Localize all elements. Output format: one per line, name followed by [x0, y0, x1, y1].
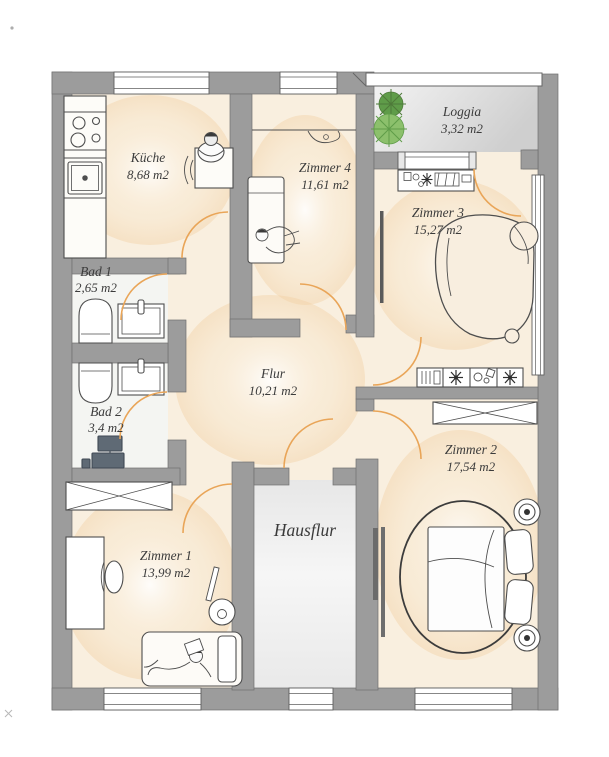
loggia-edge: [353, 73, 542, 86]
kitchen-sink-icon: [68, 162, 102, 194]
wall-zimmer4-bottom: [230, 319, 300, 337]
radiator-strip: [381, 527, 385, 637]
loggia-parapet: [366, 73, 542, 86]
decor-plant-dark: [449, 370, 463, 385]
wall-exterior-right: [538, 74, 558, 710]
wall-entry-left: [254, 468, 289, 485]
label-loggia: Loggia: [442, 104, 482, 119]
label-flur: Flur: [260, 366, 286, 381]
sink-bad1: [118, 300, 164, 338]
wall-loggia-band-left: [374, 152, 398, 169]
wardrobe-zimmer1: [66, 482, 172, 510]
label-bad1: Bad 1: [80, 264, 112, 279]
wall-zimmer3-zimmer2: [356, 387, 538, 399]
curtain-strip: [380, 211, 384, 303]
toilet-bad1: [79, 299, 112, 343]
label-loggia-area: 3,32 m2: [440, 121, 483, 136]
wall-between-baths: [72, 343, 168, 363]
sink-bad2: [118, 359, 164, 395]
window-zimmer1: [104, 688, 201, 710]
window-zimmer4: [280, 72, 337, 94]
speaker-icon-bottom: [514, 625, 540, 651]
window-hausflur: [289, 688, 333, 710]
wall-zimmer2-left-pillar: [356, 399, 374, 411]
label-bad1-area: 2,65 m2: [75, 280, 117, 295]
window-zimmer2: [415, 688, 512, 710]
label-hausflur: Hausflur: [273, 520, 336, 540]
window-loggia-zimmer3: [398, 152, 476, 169]
label-zimmer2-area: 17,54 m2: [447, 459, 496, 474]
wall-loggia-band-right: [521, 150, 538, 169]
label-bad2-area: 3,4 m2: [87, 420, 124, 435]
label-zimmer2: Zimmer 2: [445, 442, 497, 457]
bed-zimmer4: [248, 177, 284, 263]
print-artifacts: [5, 26, 14, 717]
speaker-icon-top: [514, 499, 540, 525]
floor-plan-drawing: Küche 8,68 m2 Zimmer 4 11,61 m2 Loggia 3…: [0, 0, 609, 757]
floor-plan-page: Küche 8,68 m2 Zimmer 4 11,61 m2 Loggia 3…: [0, 0, 609, 757]
toilet-bad2: [79, 363, 112, 403]
hausflur-floor: [254, 480, 356, 690]
label-kueche: Küche: [130, 150, 166, 165]
label-bad2: Bad 2: [90, 404, 122, 419]
wall-flur-zimmer3: [356, 94, 374, 337]
label-zimmer1-area: 13,99 m2: [142, 565, 191, 580]
decor-star-dark: [503, 370, 517, 385]
label-kueche-area: 8,68 m2: [127, 167, 169, 182]
wardrobe-zimmer2: [433, 402, 537, 424]
window-kueche: [114, 72, 209, 94]
stairwell-door-strip: [373, 528, 378, 600]
shelf-decor: [417, 368, 523, 387]
wall-bath-right-b: [168, 320, 186, 392]
label-zimmer3-area: 15,27 m2: [414, 222, 463, 237]
label-zimmer3: Zimmer 3: [412, 205, 464, 220]
wall-bath-right-a: [168, 258, 186, 274]
label-zimmer4-area: 11,61 m2: [301, 177, 349, 192]
label-flur-area: 10,21 m2: [249, 383, 298, 398]
label-zimmer4: Zimmer 4: [299, 160, 351, 175]
label-zimmer1: Zimmer 1: [140, 548, 192, 563]
desk-zimmer1: [66, 537, 104, 629]
